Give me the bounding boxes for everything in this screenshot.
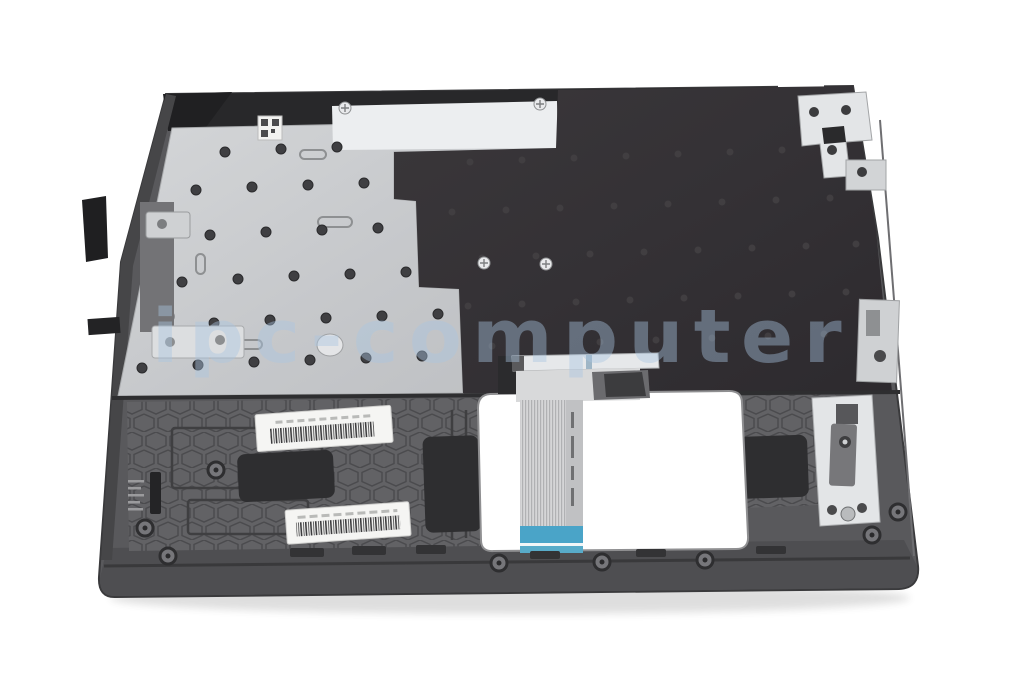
foam-pad-left	[237, 450, 335, 503]
ribbon-blue-band	[520, 526, 583, 543]
ribbon-fold-edge	[566, 400, 583, 526]
backplate-bright-strip	[332, 101, 558, 150]
touchpad-cutout	[478, 391, 748, 551]
foam-strip	[150, 472, 161, 514]
ipc-computer-watermark: ipc-computer	[152, 294, 852, 380]
product-photo: ipc-computer	[0, 0, 1024, 680]
ribbon-white-line	[520, 543, 583, 546]
touchpad-bracket-right	[812, 395, 880, 526]
qr-code-sticker	[258, 116, 282, 140]
foam-pad-middle	[422, 435, 481, 533]
hinge-bracket-right	[857, 299, 900, 382]
laptop-topcase-photo: ipc-computer	[0, 0, 1024, 680]
left-tab	[87, 317, 120, 335]
left-hinge-protrusion	[82, 196, 108, 262]
